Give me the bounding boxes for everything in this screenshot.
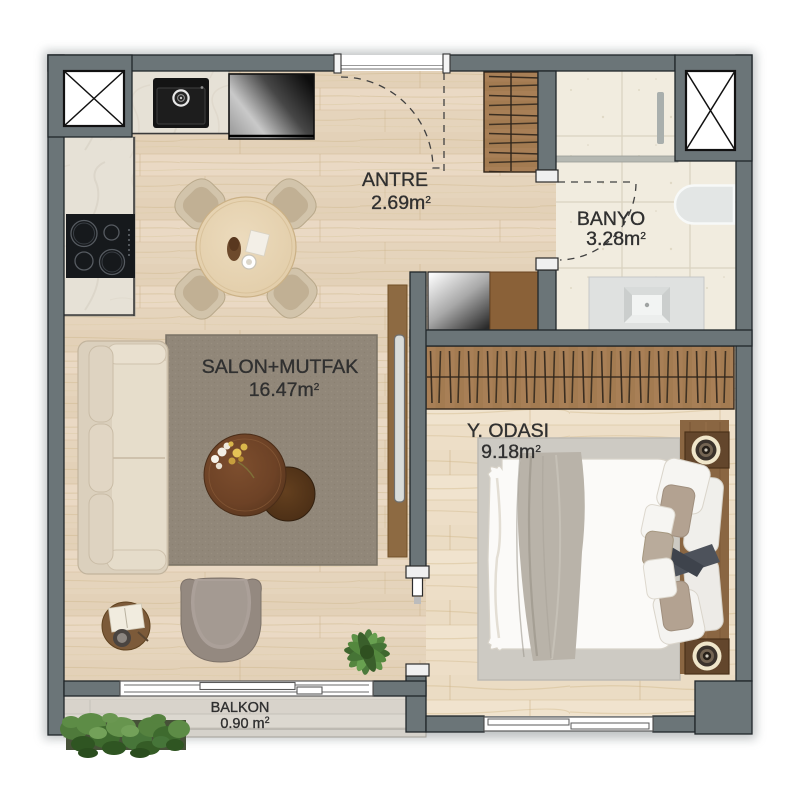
svg-text:0.90 m2: 0.90 m2 bbox=[220, 715, 269, 732]
svg-text:SALON+MUTFAK: SALON+MUTFAK bbox=[202, 356, 359, 378]
svg-text:BALKON: BALKON bbox=[211, 700, 270, 716]
svg-text:3.28m2: 3.28m2 bbox=[586, 228, 646, 250]
svg-text:9.18m2: 9.18m2 bbox=[481, 441, 541, 463]
svg-text:BANYO: BANYO bbox=[577, 208, 645, 230]
svg-text:2.69m2: 2.69m2 bbox=[371, 192, 431, 214]
svg-text:Y. ODASI: Y. ODASI bbox=[467, 420, 549, 442]
svg-text:16.47m2: 16.47m2 bbox=[249, 379, 320, 401]
svg-text:ANTRE: ANTRE bbox=[362, 169, 428, 191]
